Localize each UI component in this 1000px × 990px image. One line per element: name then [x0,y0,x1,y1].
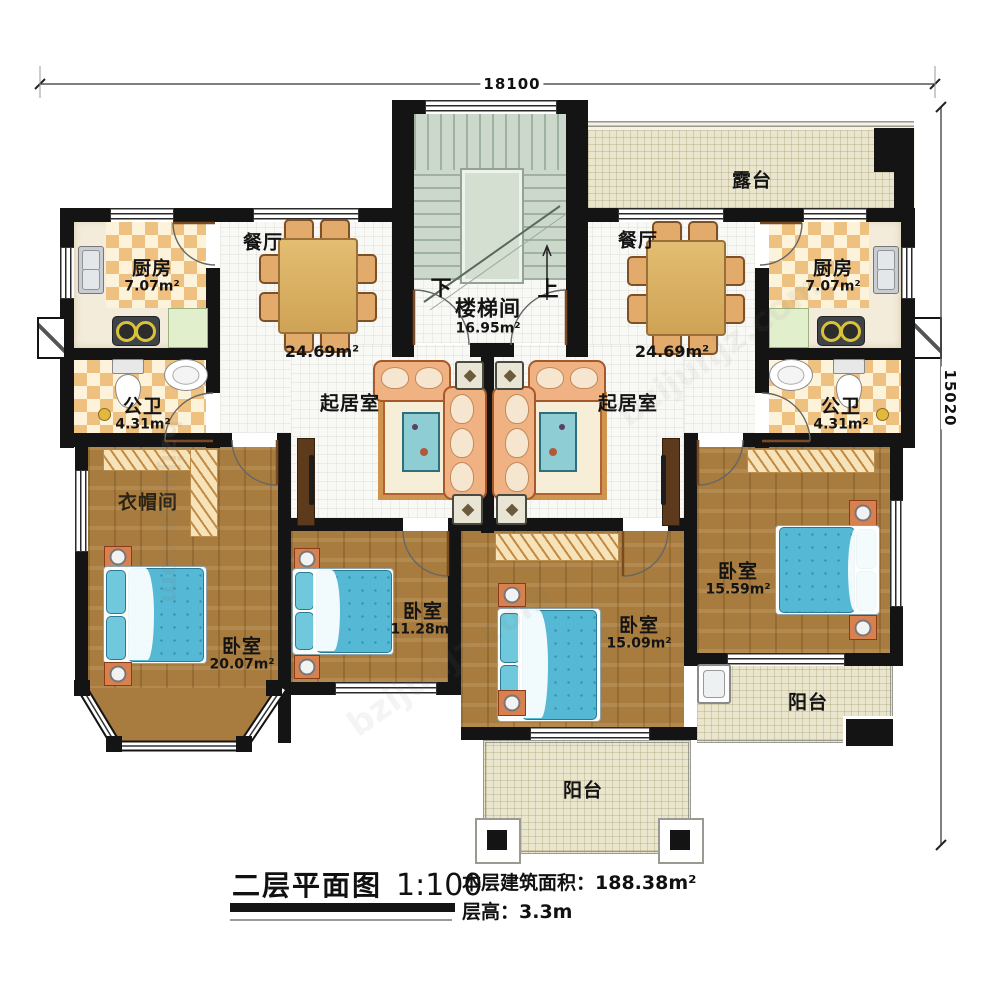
stair-landing [460,168,524,284]
wall [392,100,414,357]
room-name: 阳台 [563,780,603,801]
burner-icon [821,321,842,342]
sofa-pillow [450,394,474,424]
terrace-floor [588,128,914,208]
wall [461,727,530,740]
room-area: 15.59m² [705,583,770,599]
stair-down-label: 下 [431,272,452,302]
stove [817,316,865,346]
room-label-bath-right: 公卫 4.31m² [813,397,868,434]
flue-box [37,317,66,359]
burner-icon [135,321,156,342]
wall [566,100,588,357]
room-name: 公卫 [813,397,868,418]
sofa-pillow [415,367,443,389]
floor-area-value: 188.38m² [595,872,696,894]
balcony-pillar [487,830,507,850]
room-name: 公卫 [115,397,170,418]
window [901,247,915,299]
nightstand [104,662,132,686]
plan-title: 二层平面图 [232,864,382,904]
sofa-pillow [570,367,598,389]
room-label-bedroom-s: 卧室 11.28m² [390,602,455,639]
speaker [455,361,484,390]
wash-basin [769,359,813,391]
room-name: 露台 [732,170,772,191]
decor-icon [412,424,418,430]
room-area: 24.69m² [285,343,359,361]
sliding-door [530,727,650,740]
room-name: 楼梯间 [455,297,521,321]
sliding-door [727,653,845,666]
balcony-pillar [670,830,690,850]
room-name: 厨房 [805,259,860,280]
room-label-kitchen-left: 厨房 7.07m² [124,259,179,296]
nightstand [498,583,526,607]
shower-head-icon [98,408,111,421]
wall [843,653,890,666]
living-right-area: 24.69m² [635,343,709,361]
nightstand [294,548,320,569]
nightstand [849,615,877,640]
sofa-pillow [505,394,529,424]
room-name: 卧室 [209,637,274,658]
sofa-pillow [450,462,474,492]
wardrobe-rack [103,449,191,471]
wall [461,518,623,531]
floor-area-line: 本层建筑面积：188.38m² [462,868,696,895]
nightstand [104,546,132,568]
flue-box [913,317,942,359]
floor-height-value: 3.3m [519,901,572,923]
sofa [492,386,536,500]
terrace-railing [588,121,914,130]
speaker [496,494,527,525]
wardrobe-rack [495,533,619,561]
room-label-bath-left: 公卫 4.31m² [115,397,170,434]
floor-height-label: 层高： [462,901,519,923]
dining-table [646,240,726,336]
room-label-dining-right: 餐厅 [618,230,658,251]
window [890,500,903,607]
decor-icon [549,448,557,456]
room-label-bedroom-e: 卧室 15.59m² [705,562,770,599]
sofa [528,360,606,402]
floor-plan: 18100 15020 露台 餐厅 餐厅 楼梯间 16.95m² 下 上 厨房 … [0,0,1000,990]
bed-headboard [106,570,126,614]
counter-board [769,308,809,348]
room-label-cloakroom: 衣帽间 [118,492,178,513]
burner-icon [116,321,137,342]
room-area: 7.07m² [124,280,179,296]
counter-board [168,308,208,348]
shower-head-icon [876,408,889,421]
room-name: 衣帽间 [118,492,178,513]
bed-headboard [106,616,126,660]
bed-quilt [126,568,154,660]
dimension-top: 18100 [480,75,543,93]
wall [894,150,914,208]
stair-treads-top [414,114,566,170]
balcony-pillar [843,716,896,749]
living-left-area: 24.69m² [285,343,359,361]
window [803,208,867,222]
room-area: 16.95m² [455,321,521,337]
room-area: 4.31m² [813,418,868,434]
stair-treads-right [520,170,566,280]
room-name: 起居室 [320,393,380,414]
bed-headboard [295,612,314,650]
window [335,682,437,695]
window [618,208,724,222]
speaker [495,361,524,390]
toilet [112,359,144,374]
speaker [452,494,483,525]
room-area: 4.31m² [115,418,170,434]
wall [206,268,220,393]
room-label-balcony-s: 阳台 [563,780,603,801]
stair-treads-left [414,170,460,280]
room-area: 15.09m² [606,637,671,653]
wall [435,682,461,695]
title-block: 二层平面图 1:100 [232,864,482,904]
dimension-right: 15020 [941,366,959,429]
wash-basin [164,359,208,391]
wall [755,268,769,393]
burner-icon [840,321,861,342]
room-label-dining-left: 餐厅 [243,232,283,253]
room-name: 卧室 [390,602,455,623]
room-label-living-left: 起居室 [320,393,380,414]
room-name: 餐厅 [243,232,283,253]
bed-quilt [848,527,876,611]
room-area: 7.07m² [805,280,860,296]
coffee-table [402,412,440,472]
kitchen-sink [78,246,104,294]
nightstand [498,690,526,716]
wall [648,727,697,740]
wall [278,682,335,695]
window [425,100,557,114]
room-area: 20.07m² [209,658,274,674]
floor-height-line: 层高：3.3m [462,897,572,924]
room-label-balcony-e: 阳台 [788,692,828,713]
sofa-pillow [381,367,409,389]
room-name: 卧室 [606,616,671,637]
room-label-terrace: 露台 [732,170,772,191]
room-name: 阳台 [788,692,828,713]
sofa [373,360,451,402]
wardrobe-rack [190,449,218,537]
window [75,470,88,552]
sofa [443,386,487,500]
sofa-pillow [505,462,529,492]
window [110,208,174,222]
bed-quilt [313,570,340,651]
wall [60,433,232,447]
decor-icon [559,424,565,430]
room-label-bedroom-se: 卧室 15.09m² [606,616,671,653]
bed-mattress [779,527,855,613]
floor-area-label: 本层建筑面积： [462,872,595,894]
kitchen-sink [873,246,899,294]
room-name: 厨房 [124,259,179,280]
wall [684,447,697,666]
room-name: 餐厅 [618,230,658,251]
title-underline [230,903,455,912]
room-area: 24.69m² [635,343,709,361]
bed-headboard [295,572,314,610]
coffee-table [539,412,577,472]
room-area: 11.28m² [390,623,455,639]
window [60,247,74,299]
wall [278,433,291,743]
nightstand [294,655,320,679]
title-underline-thin [230,919,452,921]
stove [112,316,160,346]
wall [684,433,698,447]
sofa-pillow [505,428,529,458]
bed-headboard [500,613,520,663]
dining-table [278,238,358,334]
tv [661,455,666,505]
sofa-pillow [536,367,564,389]
room-label-stairwell: 楼梯间 16.95m² [455,297,521,336]
room-label-kitchen-right: 厨房 7.07m² [805,259,860,296]
stair-up-label: 上 [538,273,559,303]
sofa-pillow [450,428,474,458]
room-label-bedroom-sw: 卧室 20.07m² [209,637,274,674]
toilet [833,359,865,374]
decor-icon [420,448,428,456]
corridor-left-floor [220,345,291,433]
room-name: 起居室 [598,393,658,414]
room-label-living-right: 起居室 [598,393,658,414]
washing-machine [697,664,731,704]
nightstand [849,500,877,526]
room-name: 卧室 [705,562,770,583]
wardrobe-rack [747,449,875,473]
tv [309,455,314,505]
